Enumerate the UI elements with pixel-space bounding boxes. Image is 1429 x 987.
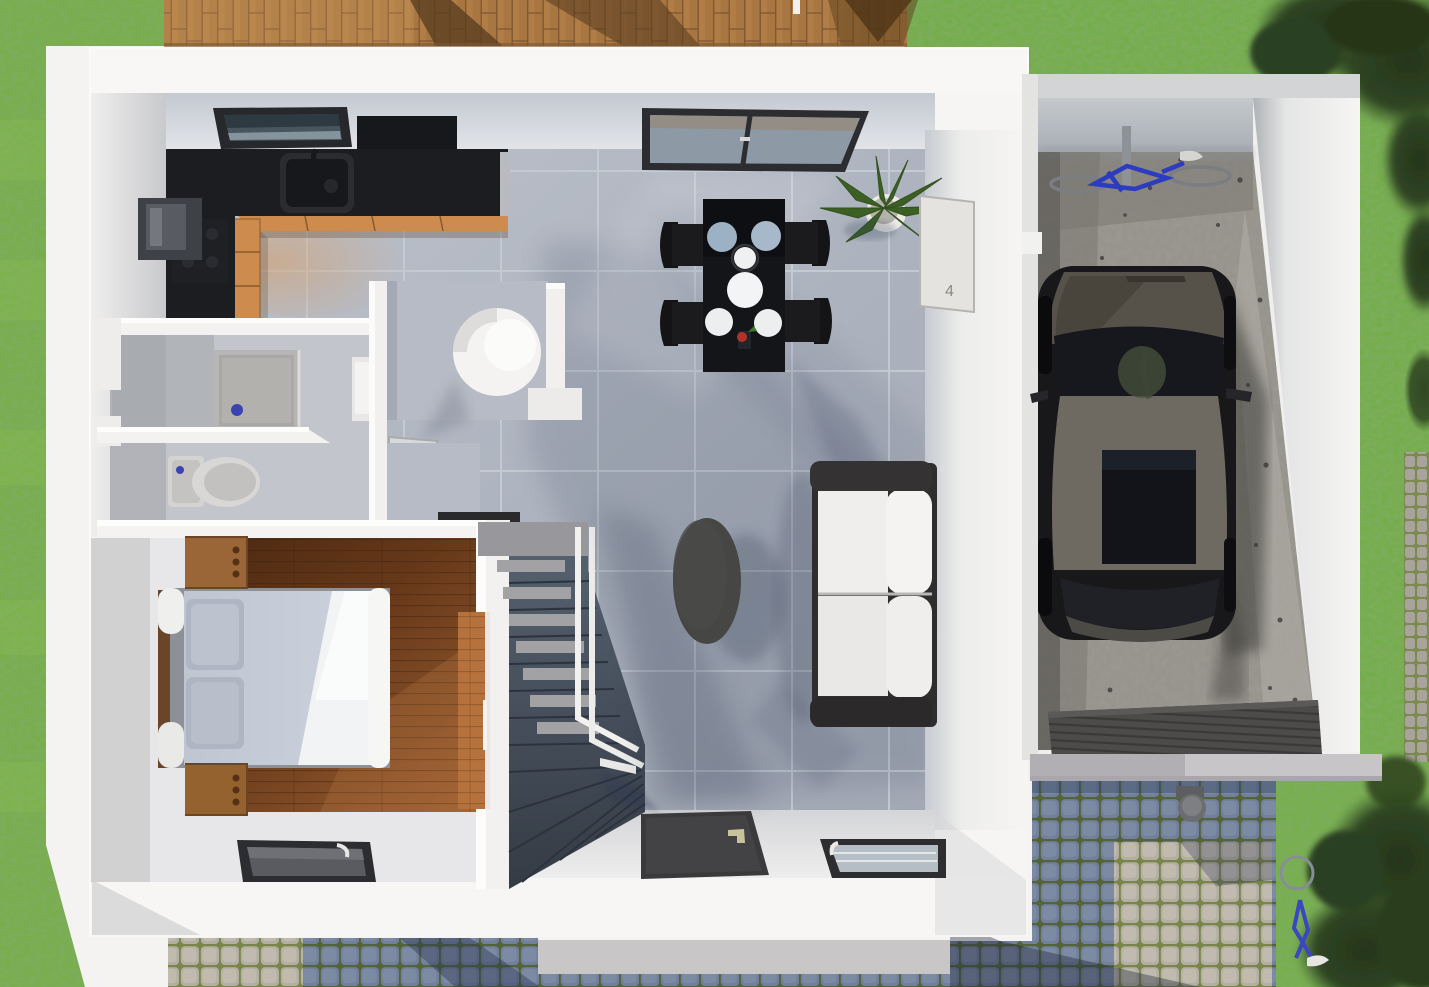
svg-text:4: 4: [945, 283, 954, 300]
